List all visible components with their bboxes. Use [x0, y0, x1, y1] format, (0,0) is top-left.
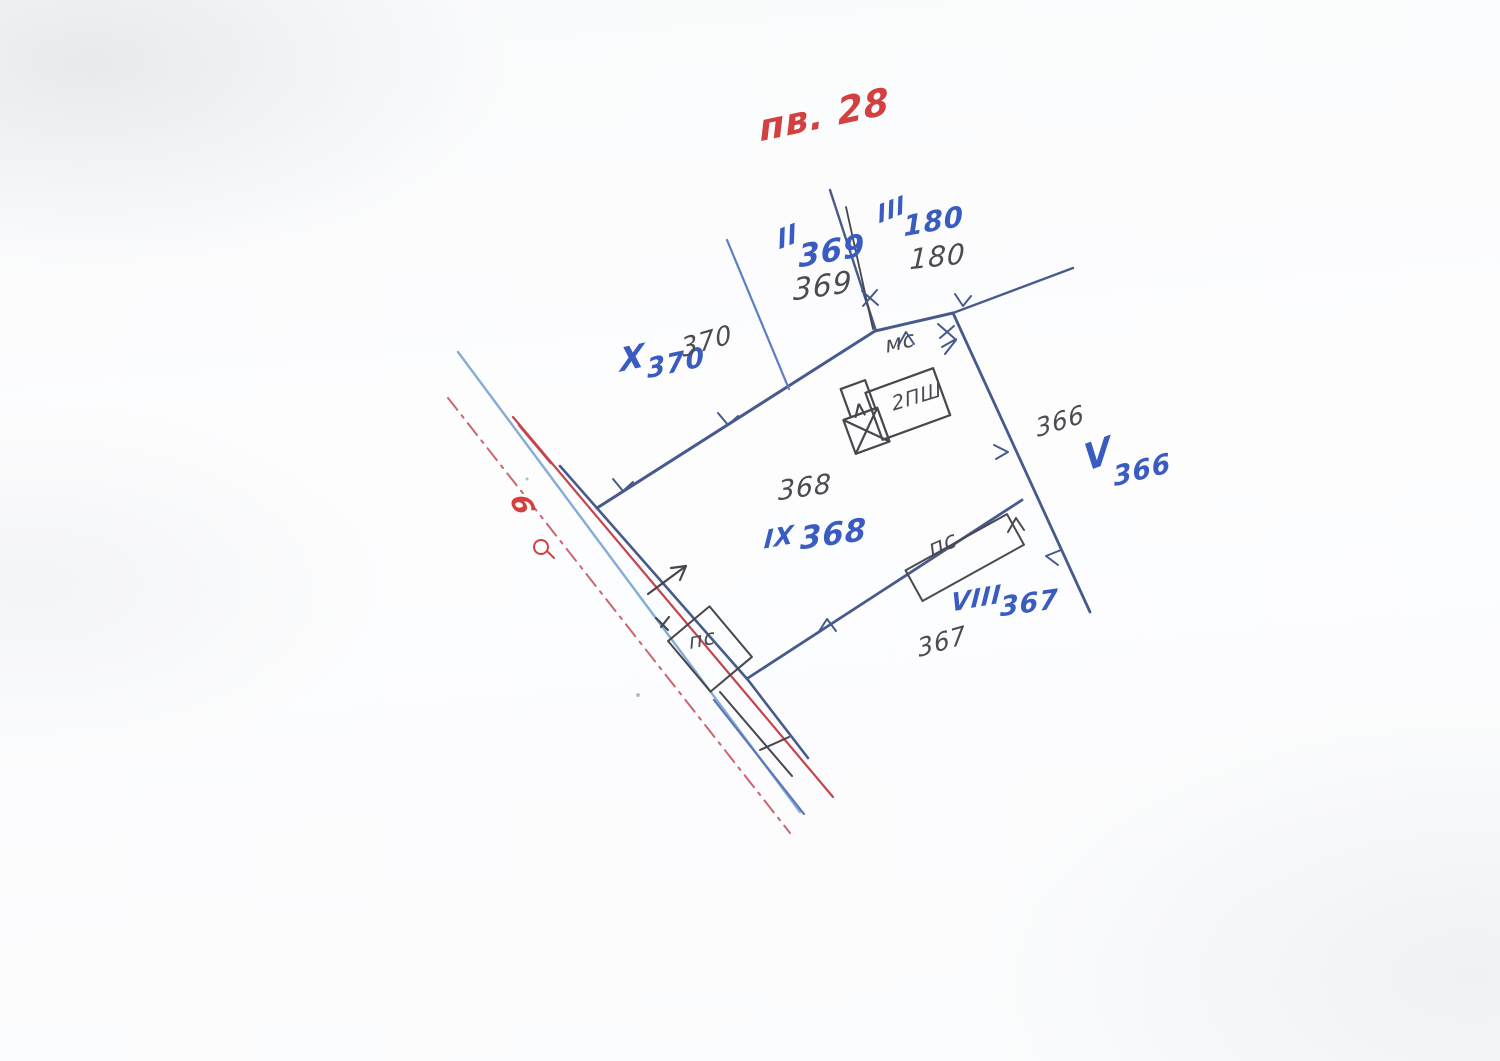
label-pc-left: пс — [688, 626, 717, 653]
tick-ne-cross — [938, 324, 954, 338]
building-annex-rect — [841, 380, 876, 417]
red-survey-symbols — [534, 540, 554, 558]
cadastral-sketch-page: пв. 28 II 369 369 III 180 180 X 370 370 … — [0, 0, 1500, 1061]
tick-366-north — [955, 294, 971, 306]
tick-nw-1 — [613, 479, 633, 491]
boundary-369-370 — [727, 240, 789, 389]
red-ring-tail — [548, 552, 554, 558]
roman-v: V — [1082, 432, 1114, 478]
southwest-arrow — [648, 566, 686, 630]
boundary-north — [875, 313, 953, 331]
tick-east-lower — [1046, 550, 1061, 565]
speck — [636, 693, 640, 697]
street-side-boundary-line — [560, 466, 808, 758]
street-axis-red-dash-dot-line — [448, 398, 790, 833]
sketch-linework — [0, 0, 1500, 1061]
speck — [526, 478, 529, 481]
roman-ix: IX — [763, 522, 795, 553]
roman-x: X — [620, 339, 645, 377]
street-secondary-blue-line — [714, 700, 804, 814]
num-368-black: 368 — [778, 470, 832, 505]
boundary-366-north — [953, 268, 1073, 313]
scan-specks — [526, 478, 641, 698]
num-180-black: 180 — [909, 240, 966, 274]
num-368-blue: 368 — [800, 515, 867, 556]
num-367-blue: 367 — [1000, 586, 1059, 622]
street-lines — [448, 352, 833, 833]
tick-east-upper — [942, 339, 956, 354]
red-ring-symbol — [534, 540, 548, 554]
num-369-black: 369 — [793, 268, 853, 307]
boundary-east — [953, 313, 1090, 612]
roman-ii: II — [776, 220, 800, 255]
tick-east-mid — [994, 445, 1008, 459]
